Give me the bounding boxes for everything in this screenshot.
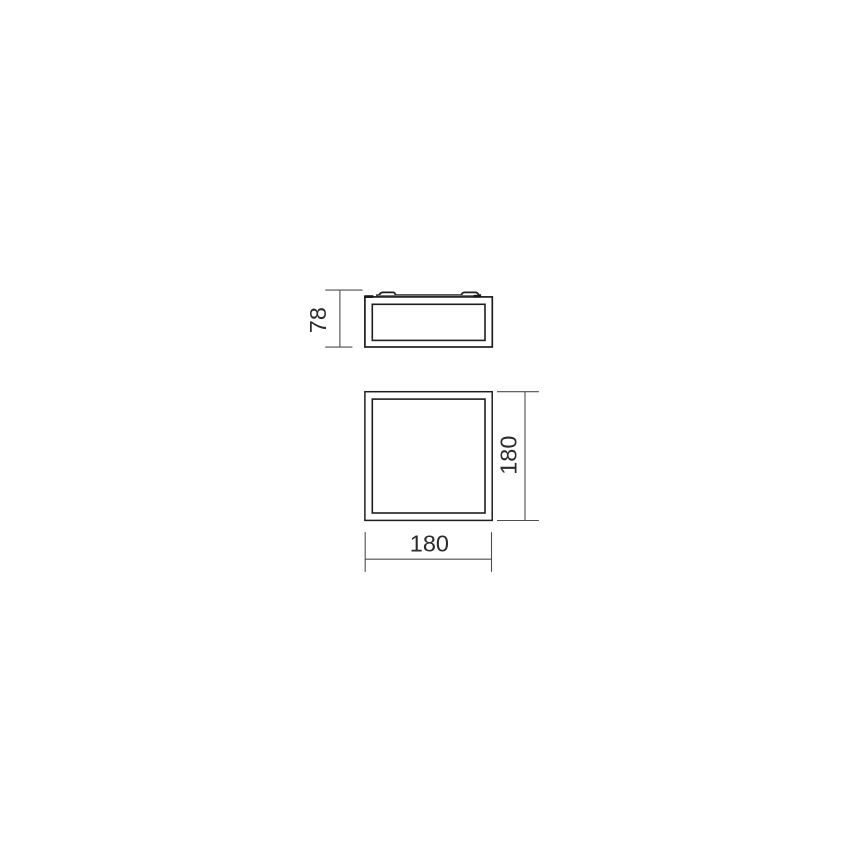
svg-text:180: 180: [496, 436, 522, 475]
svg-text:180: 180: [410, 531, 449, 557]
svg-text:78: 78: [305, 307, 331, 333]
